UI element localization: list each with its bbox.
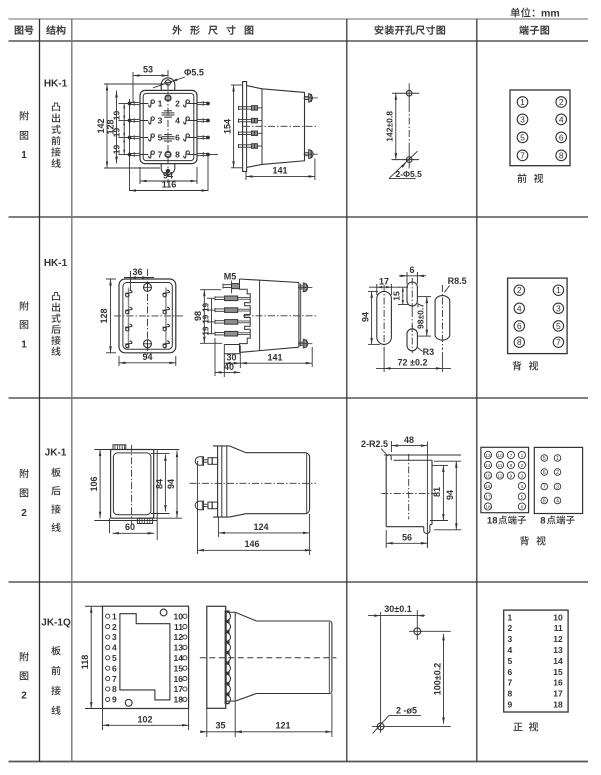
svg-text:7: 7 [508,678,513,688]
svg-text:19: 19 [111,128,121,138]
svg-text:17: 17 [485,494,491,500]
svg-text:142: 142 [96,118,106,133]
svg-text:72 ±0.2: 72 ±0.2 [398,358,428,368]
svg-text:94: 94 [360,312,370,322]
svg-text:7: 7 [510,453,513,459]
svg-text:15: 15 [174,663,184,673]
svg-text:14: 14 [553,656,563,666]
svg-text:7: 7 [520,150,525,160]
svg-text:118: 118 [80,655,90,670]
svg-text:48: 48 [404,435,414,445]
svg-text:9: 9 [112,695,117,705]
svg-text:106: 106 [89,476,99,491]
svg-text:2 -ø5: 2 -ø5 [396,706,417,716]
svg-text:154: 154 [223,119,233,134]
svg-text:8: 8 [559,150,564,160]
svg-text:2: 2 [559,97,564,107]
svg-text:6: 6 [409,265,414,275]
svg-text:6: 6 [559,132,564,142]
svg-text:5: 5 [543,456,546,462]
svg-text:13: 13 [553,645,563,655]
svg-text:8: 8 [543,498,546,504]
svg-text:5: 5 [556,321,561,331]
svg-text:121: 121 [275,721,290,731]
svg-text:11: 11 [174,622,183,632]
svg-text:JK-1: JK-1 [45,448,67,459]
svg-text:2: 2 [517,285,522,295]
svg-text:17: 17 [553,689,563,699]
svg-text:JK-1Q: JK-1Q [41,618,71,629]
svg-text:18: 18 [485,504,491,510]
svg-text:2: 2 [112,622,117,632]
svg-text:5: 5 [520,132,525,142]
svg-text:5: 5 [521,494,524,500]
svg-text:15: 15 [392,291,402,301]
svg-text:2: 2 [21,508,27,519]
svg-text:36: 36 [132,267,142,277]
svg-text:3: 3 [520,114,525,124]
svg-text:128: 128 [99,308,109,323]
svg-text:30±0.1: 30±0.1 [384,604,411,614]
svg-text:6: 6 [521,504,524,510]
svg-text:84: 84 [154,479,164,489]
svg-text:1: 1 [520,97,525,107]
svg-text:116: 116 [162,180,177,190]
svg-text:56: 56 [402,532,412,542]
svg-text:2-Φ5.5: 2-Φ5.5 [396,169,423,179]
svg-text:4: 4 [112,643,117,653]
svg-text:2: 2 [175,99,180,109]
svg-text:1: 1 [521,453,524,459]
svg-text:141: 141 [267,353,282,363]
svg-text:8: 8 [540,516,545,527]
svg-text:13: 13 [174,643,184,653]
svg-text:18: 18 [553,700,563,710]
svg-text:19: 19 [111,145,121,155]
svg-text:7: 7 [556,337,561,347]
svg-text:7: 7 [112,674,117,684]
svg-text:16: 16 [553,678,563,688]
svg-text:2: 2 [508,623,513,633]
svg-text:4: 4 [175,116,180,126]
svg-text:35: 35 [215,721,225,731]
svg-text:R3: R3 [423,347,435,357]
svg-text:M5: M5 [224,272,237,282]
svg-text:1: 1 [556,285,561,295]
svg-text:8: 8 [508,689,513,699]
svg-text:2-R2.5: 2-R2.5 [361,439,388,449]
svg-text:102: 102 [137,714,152,724]
svg-text:10: 10 [497,453,503,459]
svg-text:13: 13 [485,453,491,459]
svg-text:4: 4 [559,114,564,124]
svg-text:141: 141 [272,166,287,176]
svg-text:1: 1 [158,99,163,109]
svg-text:12: 12 [174,632,184,642]
svg-text:53: 53 [143,65,153,75]
svg-text:1: 1 [112,611,117,621]
svg-text:6: 6 [112,663,117,673]
svg-text:94: 94 [445,490,455,500]
svg-text:3: 3 [158,116,163,126]
svg-text:10: 10 [553,612,563,622]
svg-text:5: 5 [112,653,117,663]
svg-text:8: 8 [517,337,522,347]
svg-text:100±0.2: 100±0.2 [432,663,442,695]
svg-text:16: 16 [174,674,184,684]
svg-text:4: 4 [521,484,524,490]
svg-text:4: 4 [517,303,522,313]
svg-text:R8.5: R8.5 [448,276,467,286]
svg-text:19: 19 [111,111,121,121]
svg-text:9: 9 [508,700,513,710]
svg-text:2: 2 [521,463,524,469]
svg-text:3: 3 [521,473,524,479]
svg-text:18: 18 [174,695,184,705]
svg-text:HK-1: HK-1 [44,79,68,90]
svg-text:98±0.7: 98±0.7 [415,303,425,329]
svg-text:94: 94 [166,479,176,489]
svg-text:7: 7 [158,150,163,160]
svg-text:94: 94 [142,352,152,362]
svg-text:1: 1 [508,612,513,622]
svg-text:1: 1 [556,456,559,462]
svg-text:19: 19 [202,302,211,311]
svg-text:146: 146 [244,539,259,549]
svg-text:4: 4 [508,645,513,655]
svg-text:12: 12 [497,473,503,479]
svg-text:14: 14 [174,653,184,663]
svg-text:5: 5 [508,656,513,666]
svg-text:6: 6 [517,321,522,331]
svg-text:mm: mm [541,8,560,20]
svg-text:3: 3 [556,303,561,313]
svg-text:11: 11 [554,623,563,633]
svg-text:11: 11 [498,463,503,469]
svg-text:8: 8 [112,684,117,694]
svg-text:6: 6 [543,470,546,476]
svg-text:142±0.8: 142±0.8 [384,111,394,142]
svg-text:3: 3 [112,632,117,642]
svg-text:12: 12 [553,634,563,644]
svg-text:17: 17 [174,684,184,694]
svg-text:4: 4 [556,498,559,504]
svg-text:1: 1 [21,340,27,351]
svg-text:14: 14 [485,463,491,469]
svg-text:18: 18 [487,516,498,527]
svg-text:19: 19 [202,326,211,335]
svg-text:3: 3 [508,634,513,644]
svg-text:124: 124 [253,522,268,532]
svg-text:HK-1: HK-1 [44,258,68,269]
svg-text:6: 6 [508,667,513,677]
svg-text:81: 81 [432,487,442,497]
svg-text:3: 3 [556,484,559,490]
svg-text:10: 10 [174,611,184,621]
svg-text:17: 17 [379,276,389,286]
svg-text:5: 5 [158,133,163,143]
svg-text:15: 15 [553,667,563,677]
svg-text:60: 60 [125,522,135,532]
svg-text:2: 2 [21,691,27,702]
svg-text:40: 40 [224,362,234,372]
svg-text:8: 8 [510,463,513,469]
svg-text:6: 6 [175,133,180,143]
svg-text:8: 8 [175,150,180,160]
svg-text:1: 1 [21,150,27,161]
svg-text:15: 15 [485,473,491,479]
svg-text:9: 9 [510,473,513,479]
svg-text:19: 19 [202,314,211,323]
svg-text:16: 16 [485,484,491,490]
svg-text:2: 2 [556,470,559,476]
svg-text:7: 7 [543,484,546,490]
svg-text:Φ5.5: Φ5.5 [184,68,204,78]
